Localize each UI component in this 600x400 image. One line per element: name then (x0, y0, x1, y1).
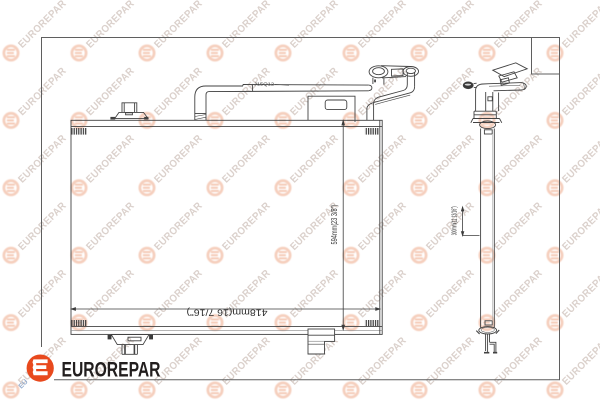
svg-text:300mm(11 13/16"): 300mm(11 13/16") (452, 206, 459, 235)
svg-text:J15Q12: J15Q12 (254, 82, 275, 87)
svg-text:418mm(16 7/16"): 418mm(16 7/16") (187, 307, 268, 317)
svg-text:594mm(23 3/8"): 594mm(23 3/8") (330, 204, 339, 244)
svg-text:EUROREPAR: EUROREPAR (62, 358, 161, 381)
